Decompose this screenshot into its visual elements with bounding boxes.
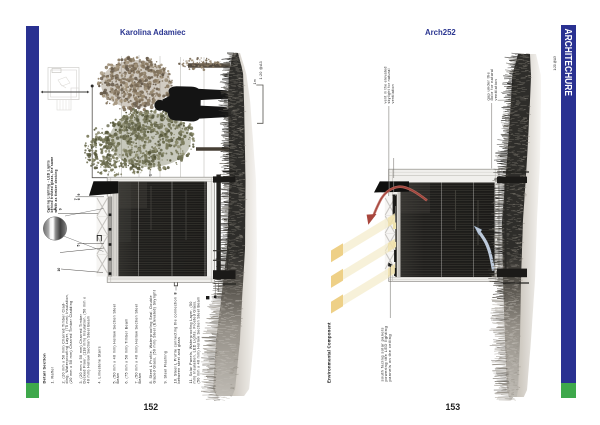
svg-text:4. Limestone Stairs: 4. Limestone Stairs (98, 346, 102, 383)
svg-text:1. Rafter: 1. Rafter (51, 366, 55, 383)
svg-text:10. Steel L Profile connecting: 10. Steel L Profile connecting the conne… (174, 297, 182, 384)
svg-text:11. Solar Panels, Waterproofin: 11. Solar Panels, Waterproofing Layer, (… (189, 297, 200, 384)
svg-text:Ceiling Lighting - LED Lightsb: Ceiling Lighting - LED Lightsbehind fros… (47, 157, 58, 214)
svg-text:1:20 @A3: 1:20 @A3 (259, 61, 263, 79)
svg-text:1: 1 (149, 174, 153, 176)
svg-text:6. (75 mm x 50 mm) Timber Beam: 6. (75 mm x 50 mm) Timber Beam (125, 318, 129, 383)
svg-text:3. (20 mm x 50 mm) Charred Tim: 3. (20 mm x 50 mm) Charred TimberDecked … (79, 297, 90, 384)
svg-text:6: 6 (77, 198, 81, 200)
svg-text:8. Steel L Profile, Waterproof: 8. Steel L Profile, Waterproofing Seal, … (149, 290, 157, 384)
svg-text:9: 9 (77, 194, 81, 196)
svg-text:5. (50 mm x 40 mm) Hollow Sect: 5. (50 mm x 40 mm) Hollow Section SteelB… (113, 304, 121, 384)
svg-text:1m: 1m (253, 79, 257, 85)
svg-text:5: 5 (77, 245, 81, 247)
svg-text:1:20 @A3: 1:20 @A3 (553, 56, 557, 70)
svg-text:8: 8 (53, 208, 57, 210)
svg-text:Environmental Component: Environmental Component (327, 322, 332, 383)
svg-text:2. (20 mm x 50 mm) Charred Tim: 2. (20 mm x 50 mm) Charred Timber Clad-d… (62, 294, 73, 384)
svg-text:6: 6 (48, 208, 52, 210)
svg-text:8: 8 (174, 293, 178, 295)
svg-text:vent in the elevatedskylight f: vent in the elevatedskylight for natural… (384, 66, 395, 103)
svg-text:Detail Section: Detail Section (42, 353, 47, 384)
svg-text:7. (50 mm x 40 mm) Hollow Sect: 7. (50 mm x 40 mm) Hollow Section SteelB… (135, 304, 143, 384)
svg-text:south facing solar panelspower: south facing solar panelspowering the LE… (380, 326, 392, 382)
svg-text:ARCHITECHURE: ARCHITECHURE (562, 29, 573, 97)
svg-text:9. Steel Flashing: 9. Steel Flashing (164, 351, 168, 384)
svg-text:10: 10 (57, 268, 61, 272)
svg-text:9: 9 (59, 208, 63, 210)
svg-text:gap under thedoor for naturalv: gap under thedoor for naturalventilation (487, 68, 498, 100)
